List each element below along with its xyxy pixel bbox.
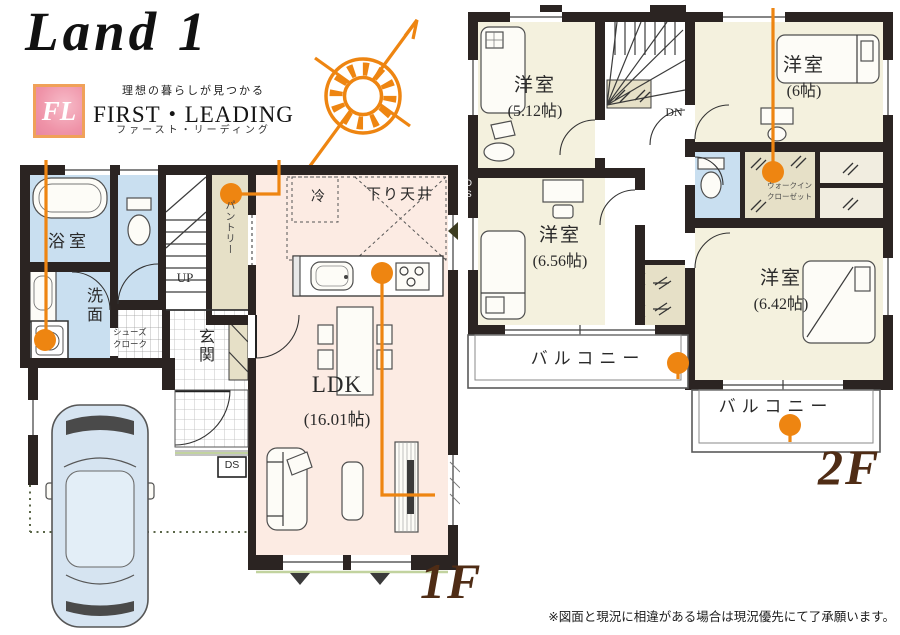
- dropped-ceiling-label: 下り天井: [348, 183, 452, 204]
- duct-label-2f: DS: [463, 178, 474, 200]
- shoes-closet-label-line1: シューズ: [113, 326, 147, 338]
- bedroom3-size: (6.56帖): [505, 247, 615, 271]
- balcony1-label: バルコニー: [508, 344, 668, 369]
- bedroom3-name: 洋室: [505, 220, 615, 247]
- stairs-down-label: DN: [656, 105, 692, 120]
- duct-label-1f: DS: [218, 459, 246, 471]
- bedroom4-name: 洋室: [726, 263, 836, 290]
- floor-label-1f: 1F: [420, 552, 482, 610]
- toilet-2f: [698, 158, 724, 198]
- shoes-closet-label-line2: クローク: [113, 338, 147, 350]
- fridge-label: 冷: [303, 186, 333, 206]
- stairs-up-label: UP: [165, 270, 205, 286]
- room-label-entrance: 玄関: [192, 328, 216, 364]
- car-top-view: [46, 405, 154, 627]
- brand-kana: ファースト・リーディング: [86, 121, 301, 136]
- floor-plan-flyer: Land 1 FL 理想の暮らしが見つかる FIRST・LEADING ファース…: [0, 0, 900, 635]
- brand-logo-mark: FL: [33, 84, 85, 138]
- ldk-size-label: (16.01帖): [277, 405, 397, 430]
- ldk-name-label: LDK: [285, 372, 389, 398]
- bedroom1-name: 洋室: [480, 70, 590, 97]
- room-label-washroom: 洗面: [80, 287, 104, 325]
- bedroom1-size: (5.12帖): [480, 97, 590, 121]
- bedroom2-size: (6帖): [749, 77, 859, 101]
- logo-script-text: Land 1: [25, 0, 209, 63]
- wic-label-line2: クローゼット: [752, 192, 827, 203]
- bedroom2-name: 洋室: [749, 50, 859, 77]
- room-label-bath: 浴室: [33, 227, 105, 252]
- wic-label-line1: ウォークイン: [752, 181, 827, 192]
- disclaimer-text: ※図面と現況に相違がある場合は現況優先にて了承願います。: [495, 606, 895, 625]
- bedroom4-size: (6.42帖): [726, 290, 836, 314]
- brand-initials: FL: [42, 96, 77, 127]
- room-label-pantry: パントリー: [221, 200, 236, 255]
- balcony2-label: バルコニー: [696, 392, 856, 417]
- kitchen-counter: [293, 256, 443, 296]
- compass-icon: [290, 8, 470, 178]
- floor-label-2f: 2F: [818, 438, 880, 496]
- bathtub: [33, 178, 107, 218]
- toilet-1f: [127, 198, 151, 245]
